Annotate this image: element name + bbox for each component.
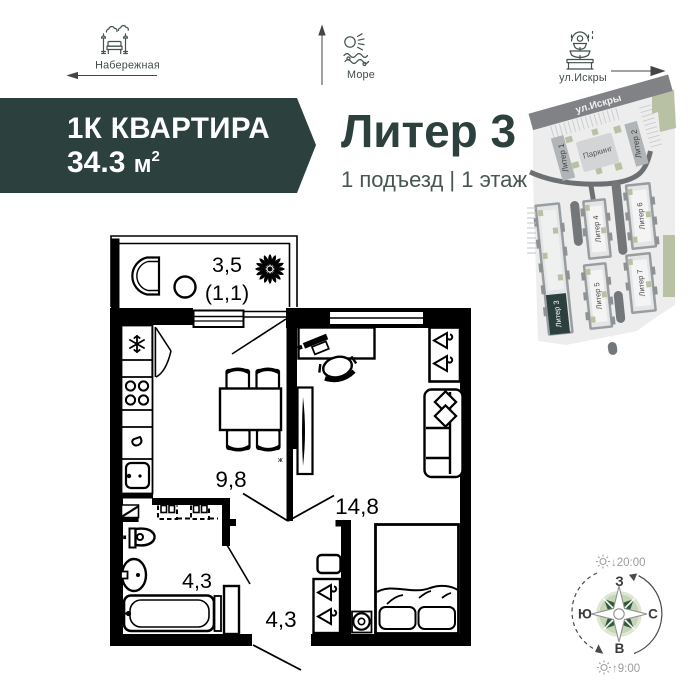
svg-text:Море: Море xyxy=(347,69,375,81)
svg-text:С: С xyxy=(648,607,658,622)
svg-text:З: З xyxy=(615,574,623,589)
svg-text:9,8: 9,8 xyxy=(215,467,246,492)
svg-text:14,8: 14,8 xyxy=(335,494,379,519)
svg-text:ж: ж xyxy=(278,457,283,464)
svg-text:3,5: 3,5 xyxy=(212,253,242,277)
svg-text:ул.Искры: ул.Искры xyxy=(559,72,607,84)
svg-text:Набережная: Набережная xyxy=(95,60,160,72)
svg-text:↓20:00: ↓20:00 xyxy=(611,557,646,569)
svg-text:Ю: Ю xyxy=(578,607,592,622)
svg-text:4,3: 4,3 xyxy=(265,607,296,632)
svg-text:(1,1): (1,1) xyxy=(205,281,249,305)
svg-text:В: В xyxy=(615,641,625,656)
svg-text:↑9:00: ↑9:00 xyxy=(612,663,640,675)
svg-text:4,3: 4,3 xyxy=(182,569,212,593)
